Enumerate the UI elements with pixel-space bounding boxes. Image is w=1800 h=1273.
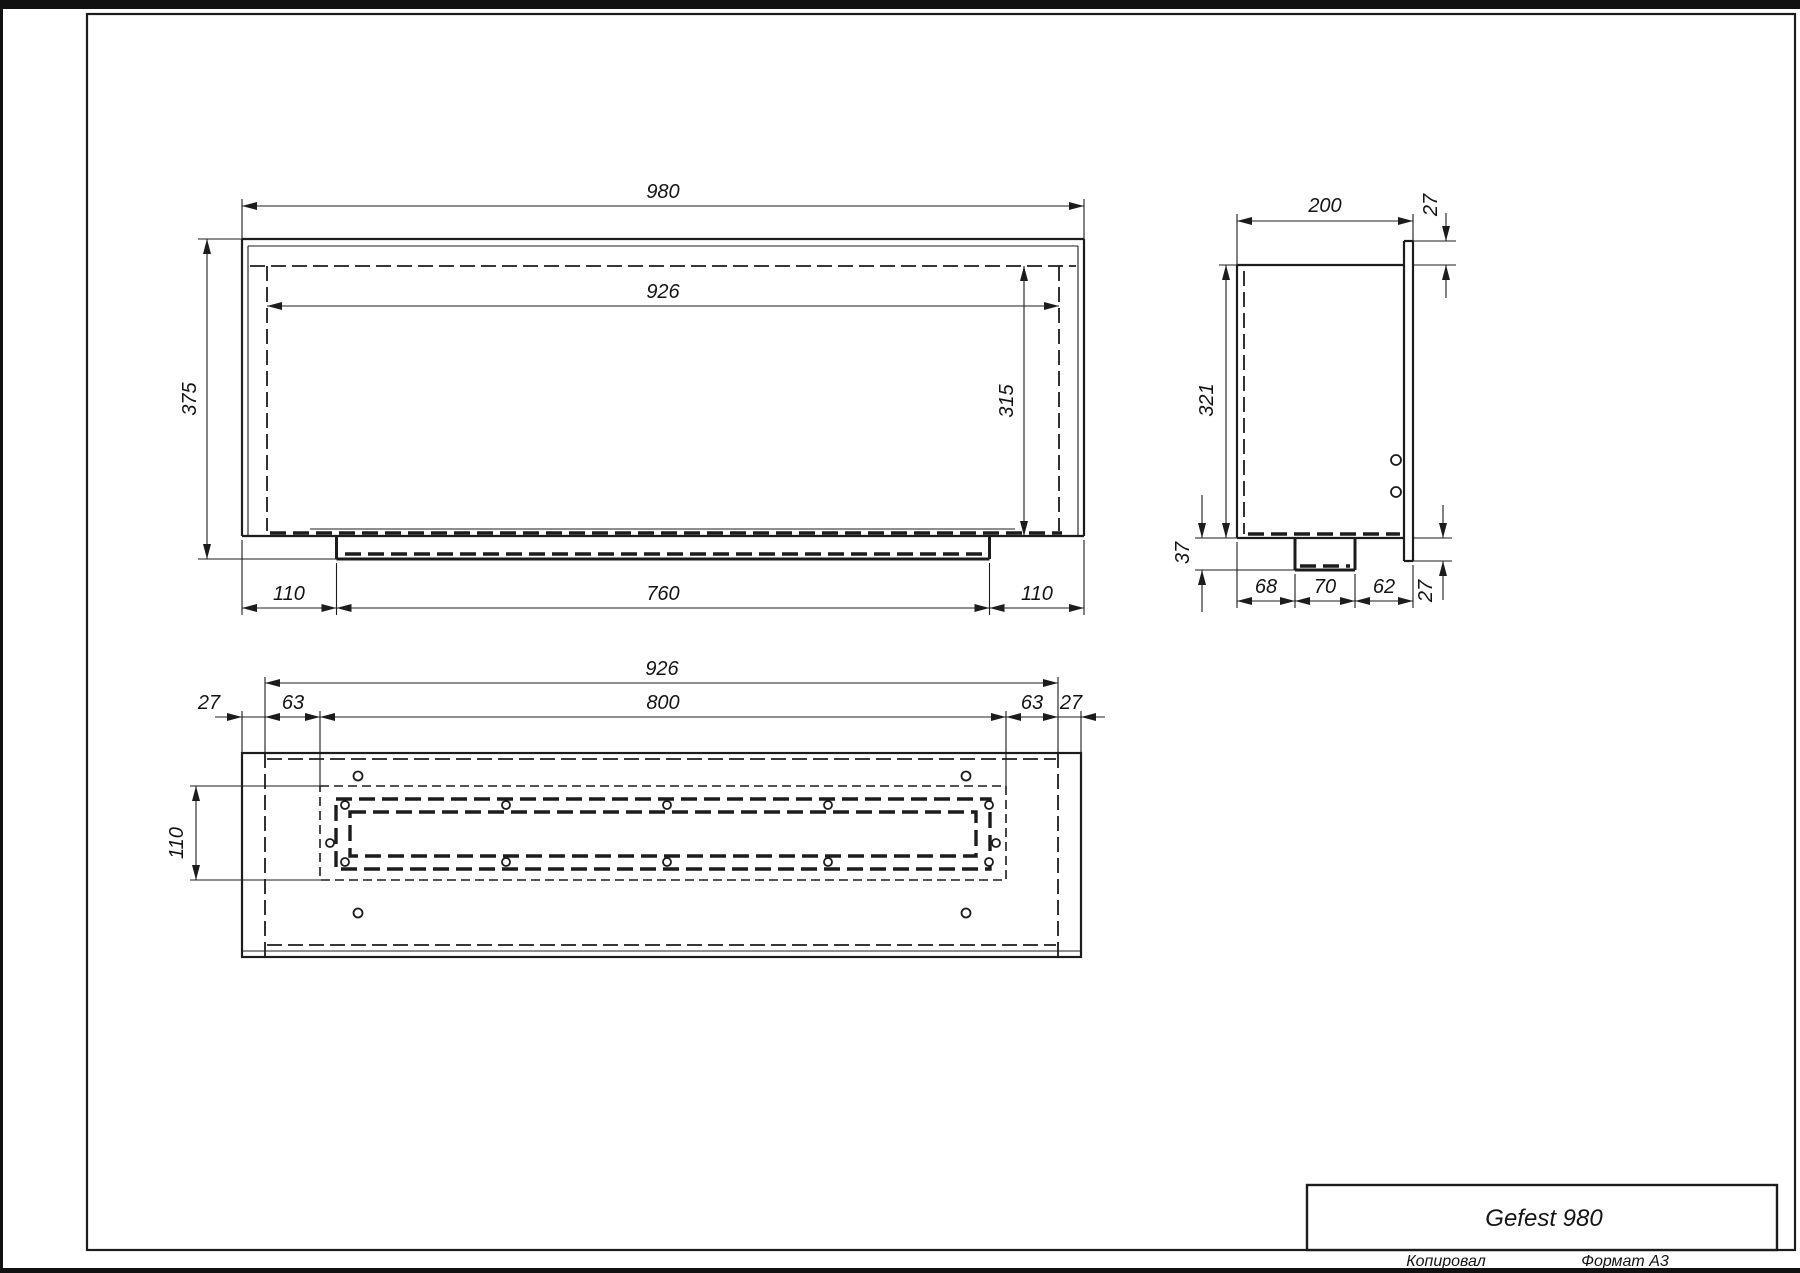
dim-side-bottom-center: 70 <box>1314 576 1336 598</box>
dim-arrow <box>242 202 257 210</box>
dim-bottom-left-flange: 27 <box>197 692 221 714</box>
dim-arrow <box>192 786 200 801</box>
dim-arrow <box>265 713 280 721</box>
dim-front-bottom-right: 110 <box>1021 583 1053 605</box>
dim-bottom-slot-width: 800 <box>646 692 679 714</box>
dim-arrow <box>1198 570 1206 585</box>
dim-arrow <box>1198 523 1206 538</box>
dim-arrow <box>1043 713 1058 721</box>
screw-hole <box>326 839 334 847</box>
dim-arrow <box>1439 523 1447 538</box>
dim-arrow <box>1222 523 1230 538</box>
dim-arrow <box>227 713 242 721</box>
dim-front-overall-width: 980 <box>646 181 679 203</box>
dim-bottom-right-flange: 27 <box>1059 692 1083 714</box>
dim-arrow <box>1237 217 1252 225</box>
dim-front-inner-width: 926 <box>646 281 680 303</box>
dim-arrow <box>305 713 320 721</box>
side-view: 200 27 321 37 68 70 62 <box>1172 193 1456 612</box>
dim-side-tray-depth: 37 <box>1172 541 1194 564</box>
screw-hole <box>663 858 671 866</box>
dim-front-inner-height: 315 <box>996 383 1018 417</box>
dim-arrow <box>322 604 337 612</box>
dim-arrow <box>320 713 335 721</box>
screw-hole <box>992 839 1000 847</box>
screw-hole <box>824 801 832 809</box>
mount-hole <box>962 909 971 918</box>
screw-hole <box>341 858 349 866</box>
title-model-name: Gefest 980 <box>1485 1205 1603 1232</box>
screw-hole <box>502 801 510 809</box>
flange-hole <box>1391 455 1401 465</box>
dim-bottom-slot-height: 110 <box>166 827 188 859</box>
dim-bottom-left-offset: 63 <box>282 692 304 714</box>
dim-arrow <box>1069 604 1084 612</box>
dim-arrow <box>1081 713 1096 721</box>
dim-arrow <box>1222 265 1230 280</box>
dim-arrow <box>265 679 280 687</box>
dim-front-bottom-left: 110 <box>273 583 305 605</box>
dim-arrow <box>242 604 257 612</box>
bottom-view-outline <box>242 753 1081 957</box>
dim-side-bottom-right: 62 <box>1373 576 1395 598</box>
dim-arrow <box>1442 265 1450 280</box>
dim-arrow <box>1355 597 1370 605</box>
dim-side-depth: 200 <box>1307 195 1341 217</box>
screw-hole <box>663 801 671 809</box>
bottom-view: 926 800 27 63 63 27 110 <box>166 658 1105 957</box>
dim-arrow <box>192 865 200 880</box>
title-block: Gefest 980 Копировал Формат А3 <box>1307 1185 1777 1270</box>
dim-arrow <box>1044 302 1059 310</box>
footer-copied-label: Копировал <box>1406 1253 1486 1270</box>
dim-arrow <box>1439 561 1447 576</box>
dim-arrow <box>1237 597 1252 605</box>
technical-drawing: 980 926 375 315 110 760 110 <box>0 0 1800 1273</box>
dim-bottom-right-offset: 63 <box>1021 692 1043 714</box>
dim-arrow <box>1280 597 1295 605</box>
bottom-view-dimensions: 926 800 27 63 63 27 110 <box>166 658 1105 880</box>
dim-arrow <box>1006 713 1021 721</box>
dim-arrow <box>337 604 352 612</box>
dim-arrow <box>1295 597 1310 605</box>
flange-hole <box>1391 487 1401 497</box>
dim-side-bottom-left: 68 <box>1255 576 1277 598</box>
mount-hole <box>354 772 363 781</box>
drawing-sheet: 980 926 375 315 110 760 110 <box>0 0 1800 1273</box>
mount-hole <box>354 909 363 918</box>
dim-bottom-body-width: 926 <box>645 658 679 680</box>
dim-arrow <box>1340 597 1355 605</box>
front-view: 980 926 375 315 110 760 110 <box>179 181 1084 615</box>
dim-front-overall-height: 375 <box>179 381 201 415</box>
dim-arrow <box>1442 226 1450 241</box>
footer-format-label: Формат А3 <box>1581 1253 1669 1270</box>
dim-arrow <box>991 713 1006 721</box>
dim-side-flange-top: 27 <box>1420 193 1442 217</box>
dimension-arrows <box>192 202 1450 880</box>
screw-hole <box>985 858 993 866</box>
dim-front-burner-width: 760 <box>646 583 679 605</box>
dim-arrow <box>203 239 211 254</box>
dim-side-body-height: 321 <box>1196 383 1218 416</box>
screw-hole <box>502 858 510 866</box>
dim-arrow <box>1398 597 1413 605</box>
side-view-outline <box>1237 241 1413 570</box>
screw-hole <box>824 858 832 866</box>
mount-hole <box>962 772 971 781</box>
dim-arrow <box>1043 679 1058 687</box>
dim-arrow <box>975 604 990 612</box>
dim-arrow <box>990 604 1005 612</box>
sheet-frame <box>0 0 1800 1273</box>
dim-side-flange-bottom: 27 <box>1415 579 1437 603</box>
dim-arrow <box>267 302 282 310</box>
dim-arrow <box>1020 266 1028 281</box>
dim-arrow <box>1398 217 1413 225</box>
dim-arrow <box>1069 202 1084 210</box>
dim-arrow <box>203 544 211 559</box>
screw-hole <box>341 801 349 809</box>
screw-hole <box>985 801 993 809</box>
